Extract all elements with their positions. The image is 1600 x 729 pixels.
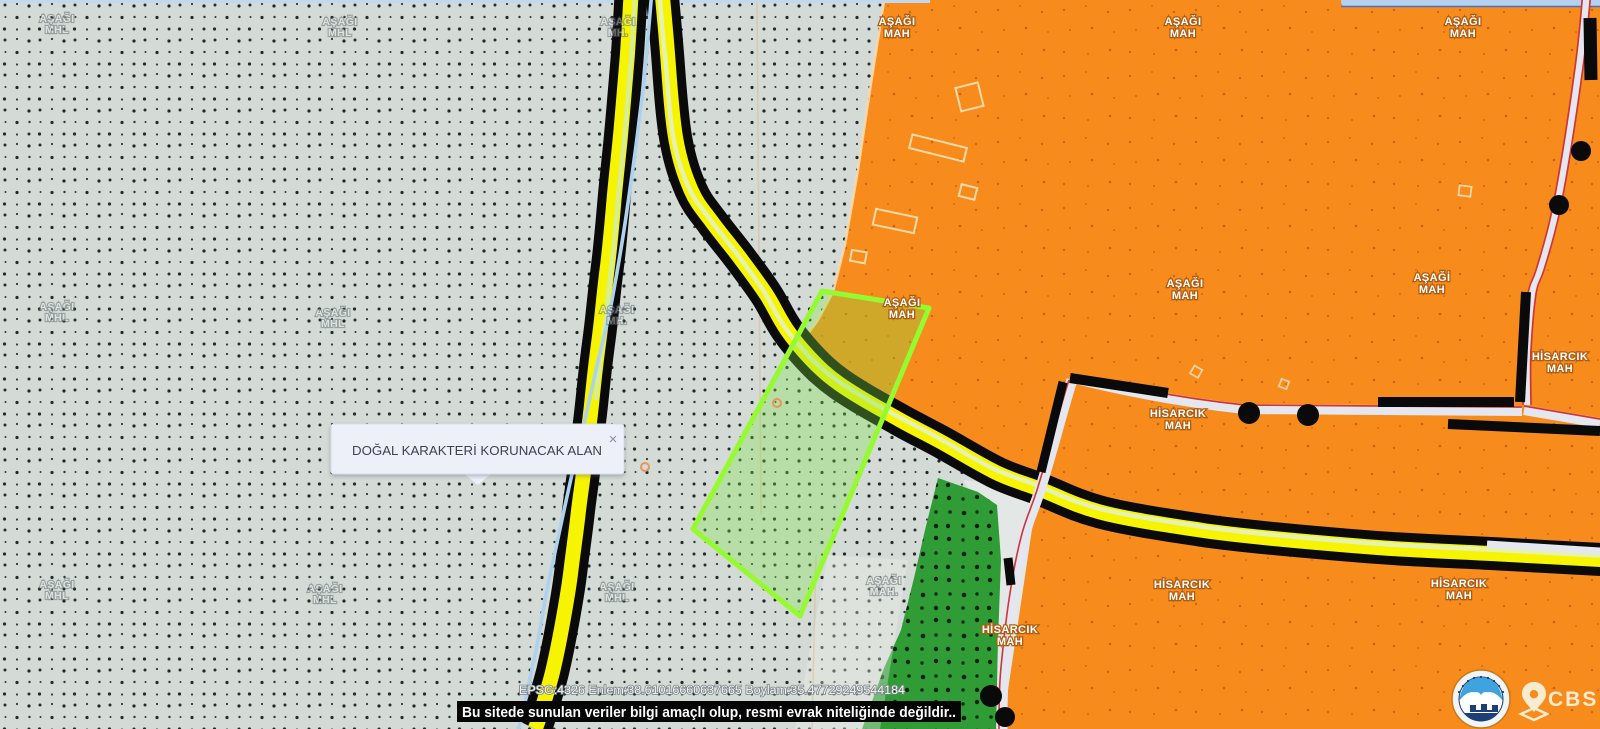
svg-text:MHL: MHL xyxy=(45,312,69,324)
svg-text:MAH: MAH xyxy=(889,309,915,321)
svg-text:MHL: MHL xyxy=(45,24,69,36)
svg-text:MAH: MAH xyxy=(1446,590,1472,602)
svg-text:MAH: MAH xyxy=(1170,28,1196,40)
svg-text:MH.: MH. xyxy=(608,27,628,39)
svg-text:HİSARCIK: HİSARCIK xyxy=(1150,407,1206,420)
svg-text:AŞAĞI: AŞAĞI xyxy=(884,296,921,309)
svg-text:HİSARCIK: HİSARCIK xyxy=(1532,350,1588,363)
svg-text:MHL: MHL xyxy=(45,590,69,602)
svg-text:MAH: MAH xyxy=(1172,290,1198,302)
svg-text:EPSG:4326 Enlem:38.61016660637: EPSG:4326 Enlem:38.61016660637665 Boylam… xyxy=(519,685,906,697)
svg-text:AŞAĞI: AŞAĞI xyxy=(1445,15,1482,28)
svg-text:MAH: MAH xyxy=(1169,591,1195,603)
svg-text:MH.: MH. xyxy=(607,315,627,327)
svg-text:HİSARCIK: HİSARCIK xyxy=(1154,578,1210,591)
svg-text:DOĞAL KARAKTERİ KORUNACAK ALAN: DOĞAL KARAKTERİ KORUNACAK ALAN xyxy=(352,443,602,458)
svg-text:MHL: MHL xyxy=(605,592,629,604)
svg-text:MAH: MAH xyxy=(884,28,910,40)
svg-text:MAH: MAH xyxy=(1165,420,1191,432)
svg-text:MAH: MAH xyxy=(997,636,1023,648)
svg-text:MAH: MAH xyxy=(1419,284,1445,296)
svg-text:HİSARCIK: HİSARCIK xyxy=(982,623,1038,636)
svg-text:AŞAĞI: AŞAĞI xyxy=(1167,277,1204,290)
svg-text:HİSARCIK: HİSARCIK xyxy=(1431,577,1487,590)
svg-text:MAH: MAH xyxy=(1547,363,1573,375)
svg-text:MAH: MAH xyxy=(1450,28,1476,40)
svg-text:AŞAĞİ: AŞAĞİ xyxy=(1414,271,1451,284)
svg-text:CBS: CBS xyxy=(1548,688,1598,711)
svg-text:MAH.: MAH. xyxy=(870,586,898,598)
svg-text:MHL: MHL xyxy=(328,27,352,39)
svg-text:AŞAĞI: AŞAĞI xyxy=(879,15,916,28)
svg-text:×: × xyxy=(609,431,618,448)
svg-text:MHL: MHL xyxy=(313,594,337,606)
svg-text:Bu sitede sunulan veriler bilg: Bu sitede sunulan veriler bilgi amaçlı o… xyxy=(462,705,956,721)
svg-text:MHL: MHL xyxy=(321,318,345,330)
svg-text:AŞAĞI: AŞAĞI xyxy=(1165,15,1202,28)
